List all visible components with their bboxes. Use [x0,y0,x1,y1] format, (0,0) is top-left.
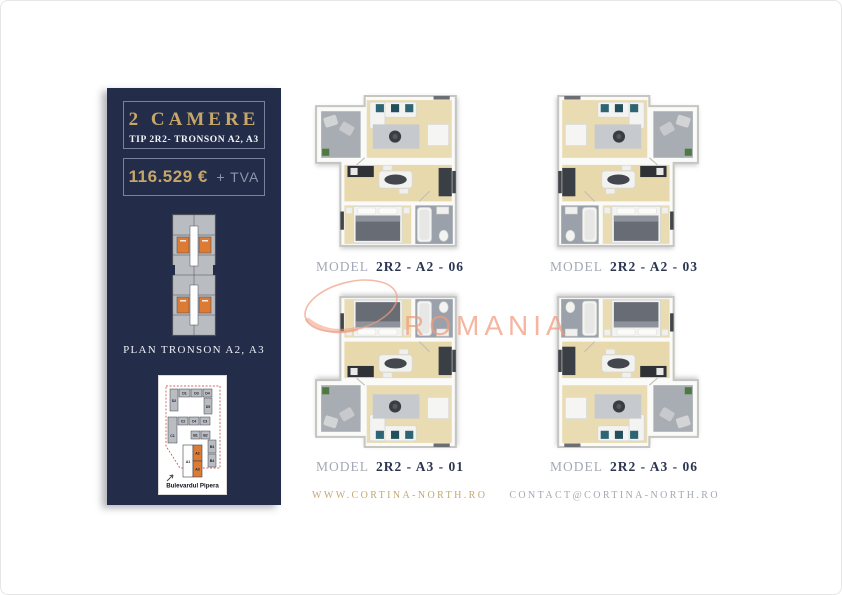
site-map: D2 D1 D3 D4 D5 C2 C4 C3 C1 B1 B2 B3 B4 A… [158,375,227,495]
floorplan-a3-06 [548,291,700,449]
svg-text:D5: D5 [206,405,211,409]
svg-text:D4: D4 [205,392,210,396]
svg-text:C2: C2 [181,420,186,424]
floorplan-a3-01 [314,291,466,449]
svg-text:B3: B3 [210,445,215,449]
svg-text:D2: D2 [172,399,177,403]
svg-text:B1: B1 [193,434,198,438]
price-vat-suffix: + TVA [216,169,259,185]
svg-text:A1: A1 [186,460,191,464]
price-box: 116.529 € + TVA [123,158,265,196]
brochure-page: 2 CAMERE TIP 2R2- TRONSON A2, A3 116.529… [0,0,842,595]
svg-text:C4: C4 [192,420,197,424]
page-title: 2 CAMERE [124,109,264,131]
plan-caption-1: MODEL2R2 - A2 - 06 [270,259,510,275]
price-value: 116.529 € [129,167,208,186]
svg-text:B2: B2 [203,434,208,438]
website-link[interactable]: WWW.CORTINA-NORTH.RO [312,490,487,501]
svg-text:C3: C3 [203,420,208,424]
footer: WWW.CORTINA-NORTH.RO CONTACT@CORTINA-NOR… [286,490,746,501]
floorplan-a2-06 [314,94,466,252]
plan-caption-3: MODEL2R2 - A3 - 01 [270,459,510,475]
svg-text:B4: B4 [210,459,215,463]
tronson-section-diagram [171,213,217,337]
plan-tronson-label: PLAN TRONSON A2, A3 [107,344,281,356]
svg-text:C1: C1 [170,434,175,438]
floorplan-a2-03 [548,94,700,252]
svg-text:D3: D3 [194,392,199,396]
street-label: Bulevardul Pipera [166,483,219,490]
sidebar: 2 CAMERE TIP 2R2- TRONSON A2, A3 116.529… [107,88,281,505]
svg-text:D1: D1 [182,392,187,396]
svg-text:A3: A3 [195,468,200,472]
title-box: 2 CAMERE TIP 2R2- TRONSON A2, A3 [123,101,265,149]
plan-caption-4: MODEL2R2 - A3 - 06 [504,459,744,475]
type-subtitle: TIP 2R2- TRONSON A2, A3 [124,135,264,145]
email-link[interactable]: CONTACT@CORTINA-NORTH.RO [509,490,720,501]
svg-text:A2: A2 [195,452,200,456]
plan-caption-2: MODEL2R2 - A2 - 03 [504,259,744,275]
